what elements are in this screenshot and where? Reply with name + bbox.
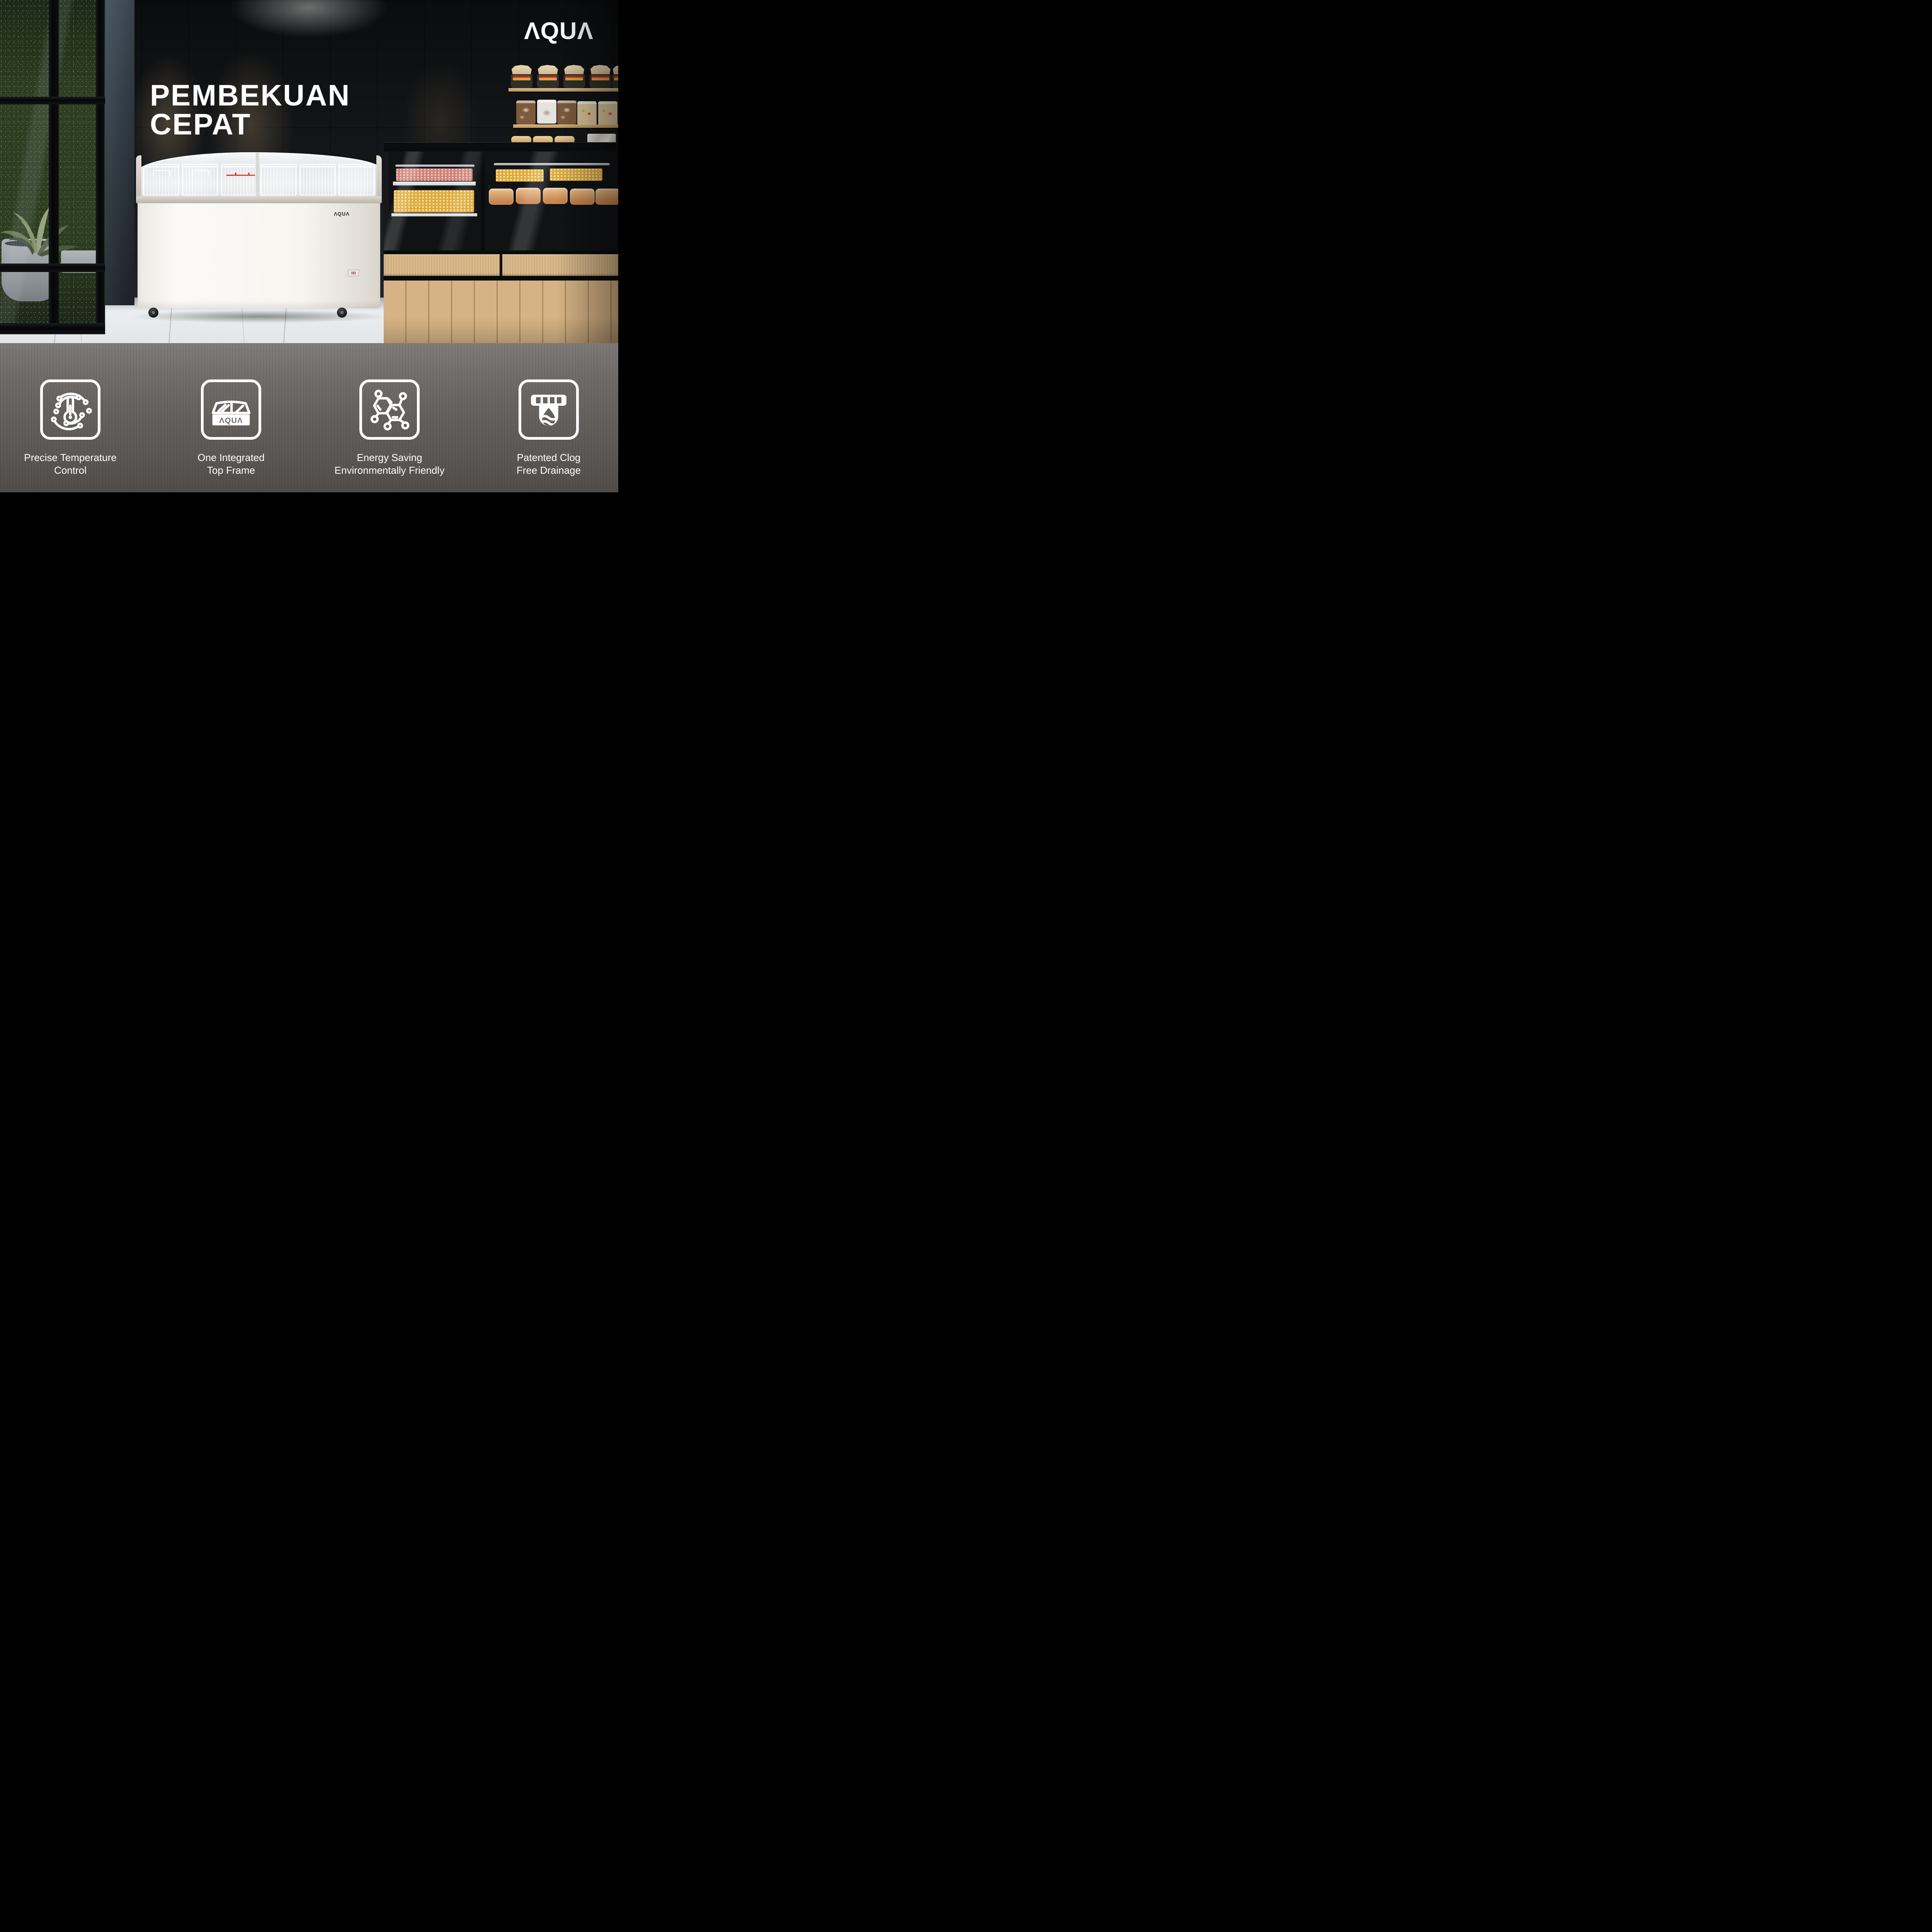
freezer-glass-lid <box>137 152 381 198</box>
wire-basket <box>221 164 257 196</box>
window-rail <box>0 264 105 272</box>
wire-basket <box>143 164 179 196</box>
window-rail <box>0 97 105 104</box>
window-mullion <box>96 0 104 334</box>
case-glass <box>384 151 618 250</box>
corner-pillar <box>105 0 134 305</box>
showroom-scene: ΛQUΛ PEMBEKUAN CEPAT ΛQUΛ <box>0 0 618 343</box>
feature-label: One Integrated Top Frame <box>197 451 264 477</box>
bakery-counter <box>384 142 618 343</box>
freezer-front-logo: ΛQUΛ <box>334 211 350 217</box>
feature-label: Precise Temperature Control <box>24 451 116 477</box>
integrated-top-frame-icon: ΛQUΛ <box>201 379 261 440</box>
lid-end-cap <box>136 155 141 199</box>
window-sill <box>0 323 105 334</box>
wood-drawers <box>384 254 618 276</box>
icon-aqua-logo: ΛQUΛ <box>219 417 243 425</box>
wire-baskets <box>143 164 375 196</box>
window-mullion <box>49 0 59 334</box>
snack-bag <box>590 65 611 88</box>
snack-bag <box>511 65 532 88</box>
wood-shelf <box>513 124 618 128</box>
feature-band: Precise Temperature Control ΛQUΛ One Int… <box>0 343 618 492</box>
freezer-top-frame <box>136 196 382 203</box>
clog-free-drainage-icon <box>519 379 579 440</box>
snack-bag <box>612 65 618 88</box>
wire-basket <box>182 164 218 196</box>
promo-poster: ΛQUΛ PEMBEKUAN CEPAT ΛQUΛ <box>0 0 618 492</box>
feature-label: Energy Saving Environmentally Friendly <box>335 451 445 477</box>
wire-basket <box>299 164 336 196</box>
snack-pouch <box>537 100 556 124</box>
wood-shelf <box>509 88 618 92</box>
snack-bag <box>563 65 585 88</box>
feature-energy-saving: Energy Saving Environmentally Friendly <box>316 343 463 477</box>
hero-title: PEMBEKUAN CEPAT <box>150 81 350 139</box>
hero-title-line1: PEMBEKUAN <box>150 81 350 110</box>
feature-top-frame: ΛQUΛ One Integrated Top Frame <box>158 343 304 477</box>
lid-end-cap <box>376 155 382 199</box>
freezer-shadow <box>131 310 387 323</box>
chest-freezer: ΛQUΛ <box>136 152 382 322</box>
counter-top <box>384 142 618 151</box>
display-case <box>384 151 618 250</box>
freezer-body: ΛQUΛ <box>138 203 380 308</box>
window-green-wall <box>0 0 105 334</box>
wire-basket <box>260 164 297 196</box>
snack-pouch <box>598 101 617 125</box>
snack-bag <box>537 65 559 88</box>
feature-precise-temperature: Precise Temperature Control <box>0 343 144 477</box>
sliding-glass-divider <box>255 153 259 198</box>
hero-title-line2: CEPAT <box>150 110 350 139</box>
feature-drainage: Patented Clog Free Drainage <box>475 343 618 477</box>
caster-wheel <box>337 308 347 318</box>
freezer-control-badge <box>348 270 359 276</box>
load-limit-line <box>226 175 258 176</box>
snack-pouch <box>557 100 577 124</box>
feature-label: Patented Clog Free Drainage <box>517 451 581 477</box>
caster-wheel <box>148 308 158 318</box>
wood-cabinet <box>384 281 618 343</box>
energy-saving-molecule-icon <box>359 379 420 440</box>
snack-pouch <box>516 100 536 124</box>
brand-logo: ΛQUΛ <box>524 19 594 43</box>
snack-pouch <box>577 101 597 125</box>
precise-temperature-icon <box>40 379 100 440</box>
wire-basket <box>338 164 375 196</box>
